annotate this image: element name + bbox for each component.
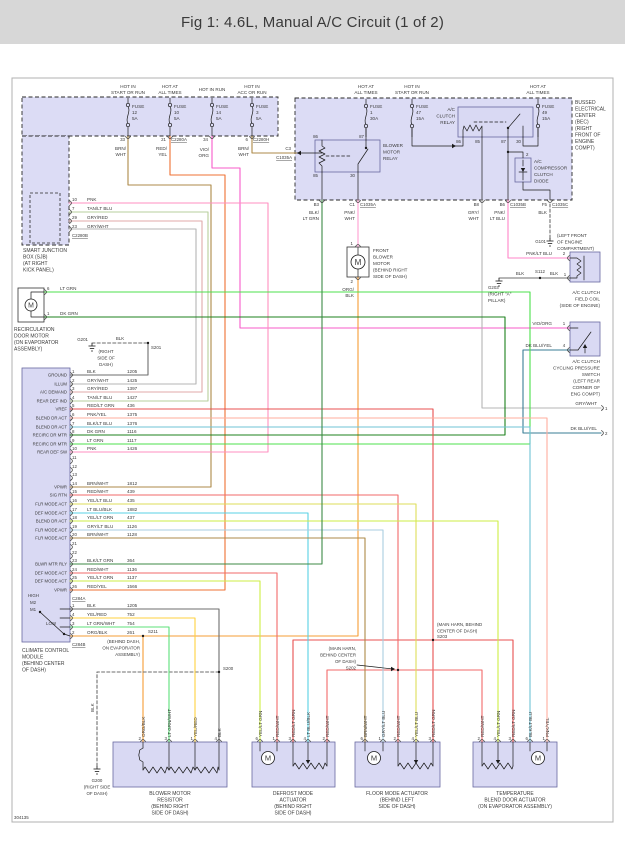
label-org: ORG/ [342, 287, 354, 292]
label-30a: 30A [370, 116, 379, 121]
label-49: 49 [542, 110, 548, 115]
label-blower: BLOWER [373, 255, 394, 260]
label-fuse: FUSE [416, 104, 428, 109]
junction-dot [147, 342, 149, 344]
label-flr-mode-act: FLR MODE ACT [35, 536, 67, 541]
label-b8: B8 [474, 202, 480, 207]
label-1: 1 [351, 241, 354, 246]
label-15a: 15A [416, 116, 425, 121]
label-gry-lt-blu: GRY/LT BLU [87, 524, 113, 529]
label-11: 11 [72, 455, 77, 460]
junction-dot [39, 611, 41, 613]
label-brn-wht: BRN/WHT [87, 532, 109, 537]
wiring-diagram: MMMMMHOT INSTART OR RUNHOT ATALL TIMESHO… [0, 0, 625, 841]
label-g200: G200 [92, 778, 103, 783]
label-side-of: SIDE OF [97, 356, 115, 361]
label-on-evaporator-assembly: (ON EVAPORATOR ASSEMBLY) [478, 804, 552, 810]
label-blk: BLK [516, 271, 524, 276]
label-defrost-mode: DEFROST MODE [273, 791, 314, 797]
label-yel-lt-grn: YEL/LT GRN [87, 515, 113, 520]
temp-blend-door-actuator [473, 742, 557, 787]
label-corner-of: CORNER OF [572, 385, 600, 390]
label-yel: YEL [158, 152, 167, 157]
label-blk-lt-blu: BLK/LT BLU [528, 712, 533, 737]
label-s201: S201 [151, 345, 162, 350]
label-c1035a: C1035A [360, 202, 376, 207]
label-9: 9 [72, 438, 75, 443]
defrost-mode-actuator [252, 742, 335, 787]
label-yel-lt-blu: YEL/LT BLU [87, 498, 112, 503]
label-blk: BLK [538, 210, 548, 215]
label-sig-rtn: SIG RTN [50, 493, 67, 498]
label-1426: 1426 [127, 446, 138, 451]
label-kick-panel: KICK PANEL) [23, 268, 54, 274]
label-4: 4 [563, 343, 566, 348]
label-a-c-clutch: A/C CLUTCH [572, 359, 600, 364]
label-hot-at: HOT AT [530, 84, 546, 89]
label-rear-def-sw: REAR DEF SW [37, 450, 68, 455]
label-5a: 5A [174, 116, 181, 121]
label-gry: GRY/ [468, 210, 480, 215]
label-6: 6 [246, 137, 249, 142]
junction-dot [507, 127, 509, 129]
label-1116: 1116 [127, 429, 137, 434]
label-1: 1 [564, 272, 567, 277]
label-blwr-mtr-rly: BLWR MTR RLY [35, 562, 67, 567]
ac-clutch-field-coil [570, 252, 600, 282]
label-left-front: (LEFT FRONT [557, 233, 587, 238]
label-red-lt-grn: RED/LT GRN [431, 710, 436, 737]
label-21: 21 [72, 541, 77, 546]
label-14: 14 [216, 110, 222, 115]
label-flr-mode-act: FLR MODE ACT [35, 502, 67, 507]
label-2: 2 [605, 431, 608, 436]
label-g101: G101 [535, 239, 546, 244]
label-diode: DIODE [534, 179, 549, 184]
label-climate-control: CLIMATE CONTROL [22, 648, 69, 654]
blower-motor-resistor [113, 742, 227, 787]
label-1205: 1205 [127, 369, 138, 374]
label-brn-wht: BRN/WHT [363, 715, 368, 737]
label-fuse: FUSE [174, 104, 186, 109]
label-tan-lt-blu: TAN/LT BLU [87, 206, 112, 211]
motor-label: M [535, 754, 541, 763]
label-s112: S112 [535, 269, 545, 274]
label-m1: M1 [30, 607, 37, 612]
label-1205: 1205 [127, 603, 138, 608]
label-1136: 1136 [127, 567, 137, 572]
label-1137: 1137 [127, 575, 137, 580]
label-18: 18 [72, 515, 77, 520]
label-hot-in-run: HOT IN RUN [199, 87, 226, 92]
label-start-or-run: START OR RUN [395, 90, 429, 95]
junction-dot [397, 669, 399, 671]
label-rear-def-ind: REAR DEF IND [37, 399, 67, 404]
label-1: 1 [370, 110, 373, 115]
label-364: 364 [127, 558, 135, 563]
label-front-of: FRONT OF [575, 133, 600, 139]
label-vref: VREF [56, 407, 68, 412]
label-recirc-dr-mtr: RECIRC DR MTR [33, 433, 67, 438]
label-wht: WHT [116, 152, 127, 157]
label-5: 5 [72, 403, 75, 408]
label-vpwr: VPWR [54, 485, 67, 490]
label-lt-blu-blk: LT BLU/BLK [87, 507, 113, 512]
label-eng-compt: ENG COMPT) [571, 392, 601, 397]
label-gry-wht: GRY/WHT [87, 378, 109, 383]
label-of-dash: OF DASH) [335, 659, 357, 664]
label-org: ORG [199, 153, 210, 158]
label-gry-wht: GRY/WHT [87, 224, 109, 229]
label-4: 4 [72, 612, 75, 617]
wire-red-wht-1136 [70, 573, 277, 742]
label-blower: BLOWER [383, 143, 404, 148]
label-blend-dr-act: BLEND DR ACT [36, 519, 68, 524]
label-436: 436 [127, 403, 135, 408]
label-lt-blu: LT BLU [490, 216, 505, 221]
label-5a: 5A [216, 116, 223, 121]
label-pnk-yel: PNK/YEL [545, 717, 550, 737]
label-1117: 1117 [127, 438, 137, 443]
label-side-of-engine: (SIDE OF ENGINE) [560, 303, 601, 308]
label-blk: BLK [90, 702, 95, 712]
label-resistor: RESISTOR [157, 798, 183, 804]
label-m2: M2 [30, 600, 37, 605]
wire-dk-grn-1116 [44, 317, 505, 435]
label-435: 435 [127, 498, 135, 503]
label-14: 14 [72, 481, 77, 486]
label-304135: 304135 [14, 815, 29, 820]
label-2: 2 [72, 630, 75, 635]
label-behind-right: (BEHIND RIGHT [151, 804, 189, 810]
junction-dot [63, 633, 65, 635]
label-29: 29 [72, 215, 77, 220]
label-brn-wht: BRN/WHT [87, 481, 109, 486]
label-hot-in: HOT IN [404, 84, 419, 89]
label-c2280b: C2280B [72, 233, 88, 238]
label-c1035b: C1035B [510, 202, 526, 207]
label-org-blk: ORG/BLK [141, 716, 146, 737]
label-gry-red: GRY/RED [87, 215, 109, 220]
label-smart-junction: SMART JUNCTION [23, 248, 67, 254]
label-on-evaporator: (ON EVAPORATOR [14, 340, 59, 346]
label-437: 437 [127, 515, 135, 520]
wire-blk-ltblu-1376 [70, 427, 530, 742]
label-red-lt-grn: RED/LT GRN [291, 710, 296, 737]
label-2: 2 [563, 251, 566, 256]
label-red: RED/ [156, 146, 168, 151]
label-motor: MOTOR [383, 150, 401, 155]
label-439: 439 [127, 489, 135, 494]
label-vio-org: VIO/ORG [532, 321, 552, 326]
label-blk: BLK [87, 369, 97, 374]
label-hot-in: HOT IN [120, 84, 135, 89]
label-front: FRONT [373, 248, 389, 253]
label-19: 19 [72, 524, 77, 529]
motor-label: M [28, 303, 34, 310]
label-86: 86 [456, 139, 461, 144]
label-16: 16 [72, 498, 77, 503]
label-85: 85 [313, 173, 318, 178]
label-motor: MOTOR [373, 261, 391, 266]
label-wht: WHT [239, 152, 250, 157]
label-left-rear: (LEFT REAR [573, 379, 600, 384]
label-cycling-pressure: CYCLING PRESSURE [553, 366, 600, 371]
label-87: 87 [359, 134, 364, 139]
wire-vpwr-1812 [70, 136, 211, 487]
label-blk: BLK [87, 603, 97, 608]
label-center-of-dash: CENTER OF DASH) [437, 629, 478, 634]
label-all-times: ALL TIMES [158, 90, 181, 95]
wire-yel-ltblu-435 [70, 504, 416, 742]
label-4: 4 [72, 395, 75, 400]
label-3: 3 [72, 621, 75, 626]
label-1: 1 [72, 369, 75, 374]
label-blend-dr-act: BLEND DR ACT [36, 416, 68, 421]
label-s203: S203 [437, 634, 448, 639]
label-30: 30 [516, 139, 521, 144]
sjb-column [22, 136, 69, 245]
label-blower-motor: BLOWER MOTOR [149, 791, 191, 797]
label-s202: S202 [346, 666, 357, 671]
label-hot-in: HOT IN [244, 84, 259, 89]
label-red-wht: RED/WHT [396, 715, 401, 737]
label-1: 1 [563, 321, 566, 326]
label-center: CENTER [575, 113, 596, 119]
label-hot-at: HOT AT [358, 84, 374, 89]
label-clutch: CLUTCH [534, 172, 553, 177]
label-assembly: ASSEMBLY) [115, 652, 140, 657]
label-of-engine: OF ENGINE [557, 240, 582, 245]
wire-gry-wht-1425 [69, 229, 196, 384]
label-side-of-dash: SIDE OF DASH) [373, 274, 407, 279]
label-behind-center: (BEHIND CENTER [22, 661, 65, 667]
label-yel-lt-grn: YEL/LT GRN [258, 711, 263, 737]
label-recirc-dr-mtr: RECIRC DR MTR [33, 442, 67, 447]
floor-mode-actuator [355, 742, 440, 787]
wire-yel-ltgrn-1137 [70, 581, 260, 742]
label-pnk: PNK/ [344, 210, 355, 215]
junction-dot [142, 635, 144, 637]
label-low: LOW [46, 621, 57, 626]
label-a-c: A/C [447, 107, 455, 112]
label-compressor: COMPRESSOR [534, 166, 568, 171]
label-assembly: ASSEMBLY) [14, 347, 43, 353]
label-1: 1 [605, 406, 608, 411]
label-acc-or-run: ACC OR RUN [237, 90, 266, 95]
label-box-sjb: BOX (SJB) [23, 255, 48, 261]
label-on-evaporator: ON EVAPORATOR [102, 646, 140, 651]
label-behind-dash: (BEHIND DASH, [107, 639, 140, 644]
label-engine: ENGINE [575, 139, 595, 145]
label-start-or-run: START OR RUN [111, 90, 145, 95]
label-dk-blu-yel: DK BLU/YEL [525, 343, 552, 348]
label-yel-lt-blu: YEL/LT BLU [414, 712, 419, 737]
label-1882: 1882 [127, 507, 138, 512]
label-20: 20 [72, 532, 77, 537]
label-lt-grn: LT GRN [87, 438, 103, 443]
label-clutch: CLUTCH [436, 114, 455, 119]
label-org-blk: ORG/BLK [87, 630, 108, 635]
label-c284b: C284B [72, 642, 85, 647]
label-tan-lt-blu: TAN/LT BLU [87, 395, 112, 400]
label-fuse: FUSE [256, 104, 268, 109]
label-wht: WHT [469, 216, 480, 221]
label-c3: C3 [285, 146, 291, 151]
label-yel-red: YEL/RED [193, 717, 198, 737]
label-door-motor: DOOR MOTOR [14, 334, 49, 340]
label-wht: WHT [345, 216, 356, 221]
junction-dot [432, 639, 434, 641]
label-g201: G201 [77, 337, 88, 342]
label-yel-lt-grn: YEL/LT GRN [87, 575, 113, 580]
label-pnk: PNK [87, 446, 97, 451]
label-15a: 15A [542, 116, 551, 121]
wire-gry-red-1397 [69, 221, 202, 392]
label-3: 3 [72, 386, 75, 391]
label-all-times: ALL TIMES [526, 90, 549, 95]
label-1: 1 [72, 603, 75, 608]
label-gry-lt-blu: GRY/LT BLU [381, 711, 386, 737]
label-behind-right: (BEHIND RIGHT [274, 804, 312, 810]
label-1425: 1425 [127, 378, 138, 383]
wire-s202-pointer [357, 665, 393, 669]
label-24: 24 [72, 567, 77, 572]
label-1: 1 [47, 311, 50, 316]
wire-vref-436-b2 [433, 640, 513, 742]
label-lt-blu-blk: LT BLU/BLK [306, 711, 311, 737]
junction-dot [218, 671, 220, 673]
label-module: MODULE [22, 655, 44, 661]
junction-dot [507, 151, 509, 153]
label-25: 25 [72, 575, 77, 580]
label-a-c-demand: A/C DEMAND [40, 390, 67, 395]
label-fuse: FUSE [132, 104, 144, 109]
label-blk: BLK/ [309, 210, 320, 215]
label-lt-grn-wht: LT GRN/WHT [87, 621, 115, 626]
label-def-mode-act: DEF MODE ACT [35, 571, 68, 576]
label-compt: COMPT) [575, 146, 595, 152]
motor-label: M [355, 258, 362, 267]
label-side-of-dash: SIDE OF DASH) [275, 811, 312, 817]
label-13: 13 [72, 472, 77, 477]
label-26: 26 [72, 584, 77, 589]
label-temperature: TEMPERATURE [496, 791, 534, 797]
label-g203: G203 [488, 285, 499, 290]
label-lt-grn: LT GRN [303, 216, 319, 221]
label-blk-lt-grn: BLK/LT GRN [87, 558, 113, 563]
label-dk-grn: DK GRN [60, 311, 78, 316]
label-flr-mode-act: FLR MODE ACT [35, 528, 67, 533]
label-b6: B6 [500, 202, 506, 207]
label-relay: RELAY [440, 120, 455, 125]
label-right-a: (RIGHT "A" [488, 292, 512, 297]
label-gry-wht: GRY/WHT [575, 401, 597, 406]
label-s200: S200 [223, 666, 234, 671]
label-pillar: PILLAR) [488, 298, 506, 303]
label-22: 22 [72, 550, 77, 555]
label-6: 6 [72, 412, 75, 417]
label-lt-grn-wht: LT GRN/WHT [167, 709, 172, 737]
label-blk: BLK [550, 271, 558, 276]
label-1376: 1376 [127, 421, 138, 426]
label-red-wht: RED/WHT [87, 567, 109, 572]
label-electrical: ELECTRICAL [575, 107, 606, 113]
label-1375: 1375 [127, 412, 138, 417]
label-blend-dr-act: BLEND DR ACT [36, 425, 68, 430]
label-red-lt-grn: RED/LT GRN [87, 403, 114, 408]
wire-lt-grn-1117 [44, 292, 530, 444]
label-pnk: PNK/ [494, 210, 505, 215]
label-brn: BRN/ [238, 146, 250, 151]
label-86: 86 [313, 134, 318, 139]
label-7: 7 [72, 206, 75, 211]
label-c1035c: C1035C [552, 202, 568, 207]
label-high: HIGH [28, 593, 39, 598]
label-1126: 1126 [127, 524, 137, 529]
label-floor-mode-actuator: FLOOR MODE ACTUATOR [366, 791, 428, 797]
label-actuator: ACTUATOR [279, 798, 306, 804]
label-bec: (BEC) [575, 120, 589, 126]
label-illum: ILLUM [54, 382, 67, 387]
label-bussed: BUSSED [575, 100, 596, 106]
label-7: 7 [72, 421, 75, 426]
label-3: 3 [256, 110, 259, 115]
label-vpwr: VPWR [54, 588, 67, 593]
label-vio: VIO/ [200, 147, 210, 152]
label-1812: 1812 [127, 481, 138, 486]
label-blk: BLK [217, 727, 222, 737]
label-30: 30 [350, 173, 355, 178]
label-main-harn: (MAIN HARN, [329, 646, 356, 651]
label-all-times: ALL TIMES [354, 90, 377, 95]
label-c2280h: C2280H [253, 137, 269, 142]
label-pnk-yel: PNK/YEL [87, 412, 107, 417]
label-dk-grn: DK GRN [87, 429, 105, 434]
label-at-right: (AT RIGHT [23, 261, 48, 267]
motor-label: M [371, 754, 377, 763]
label-blk: BLK [345, 293, 355, 298]
label-1128: 1128 [127, 532, 137, 537]
label-def-mode-act: DEF MODE ACT [35, 579, 68, 584]
label-fuse: FUSE [542, 104, 554, 109]
label-2: 2 [72, 378, 75, 383]
label-5a: 5A [132, 116, 139, 121]
label-lt-grn: LT GRN [60, 286, 76, 291]
label-c284a: C284A [72, 596, 85, 601]
label-dash: DASH) [99, 362, 113, 367]
label-pnk: PNK [87, 197, 97, 202]
label-a-c-clutch: A/C CLUTCH [572, 290, 600, 295]
label-s211: S211 [148, 629, 158, 634]
wire-yel-red-752 [70, 618, 195, 742]
label-1397: 1397 [127, 386, 138, 391]
label-right-side: (RIGHT SIDE [84, 785, 111, 790]
label-754: 754 [127, 621, 135, 626]
label-red-wht: RED/WHT [480, 715, 485, 737]
label-right: (RIGHT [575, 126, 592, 132]
label-recirculation: RECIRCULATION [14, 327, 55, 333]
label-2: 2 [351, 279, 354, 284]
label-yel-red: YEL/RED [87, 612, 107, 617]
label-red-wht: RED/WHT [325, 715, 330, 737]
junction-dot [539, 277, 541, 279]
label-12: 12 [132, 110, 138, 115]
wire-vref-436 [70, 409, 433, 742]
label-c1035a: C1035A [276, 155, 292, 160]
label-8: 8 [72, 429, 75, 434]
label-of-dash: OF DASH) [22, 668, 46, 674]
